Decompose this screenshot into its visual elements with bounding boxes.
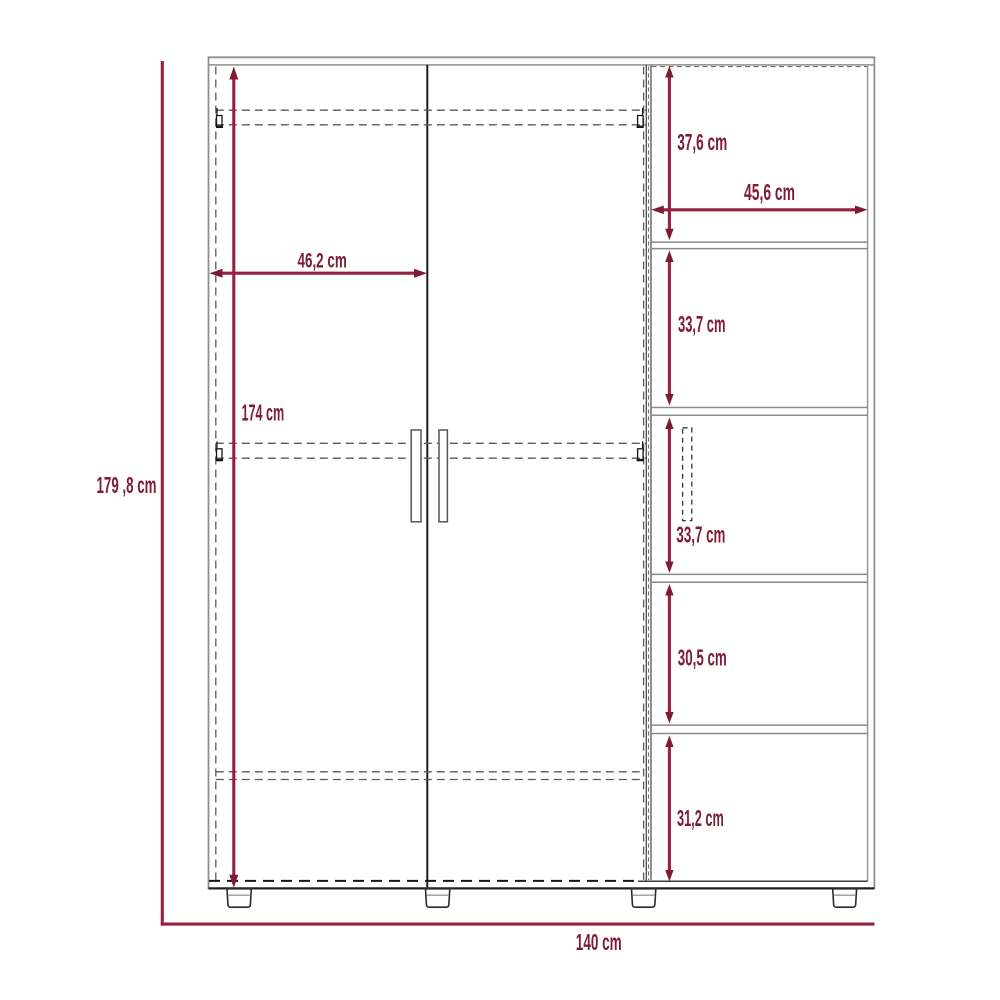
svg-text:46,2 cm: 46,2 cm: [298, 249, 347, 273]
svg-text:45,6 cm: 45,6 cm: [744, 179, 795, 205]
svg-text:37,6 cm: 37,6 cm: [677, 129, 727, 155]
svg-text:30,5 cm: 30,5 cm: [678, 644, 727, 670]
svg-text:179 ,8 cm: 179 ,8 cm: [97, 472, 157, 498]
svg-text:140 cm: 140 cm: [576, 929, 622, 955]
svg-text:33,7 cm: 33,7 cm: [676, 522, 725, 548]
svg-text:174 cm: 174 cm: [242, 400, 285, 426]
svg-text:31,2 cm: 31,2 cm: [677, 805, 724, 831]
svg-text:33,7 cm: 33,7 cm: [678, 311, 726, 337]
